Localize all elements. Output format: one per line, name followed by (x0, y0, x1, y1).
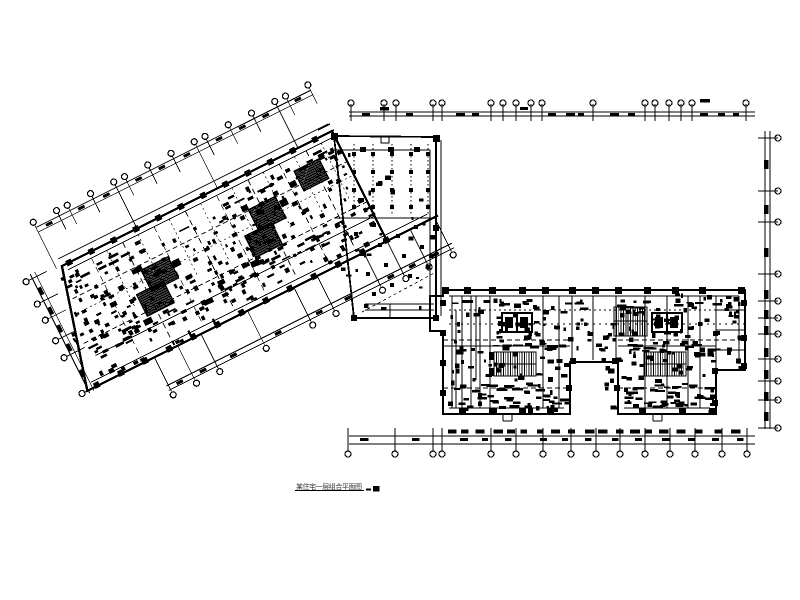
svg-text:某住宅一层组合平面图: 某住宅一层组合平面图 (296, 482, 362, 491)
